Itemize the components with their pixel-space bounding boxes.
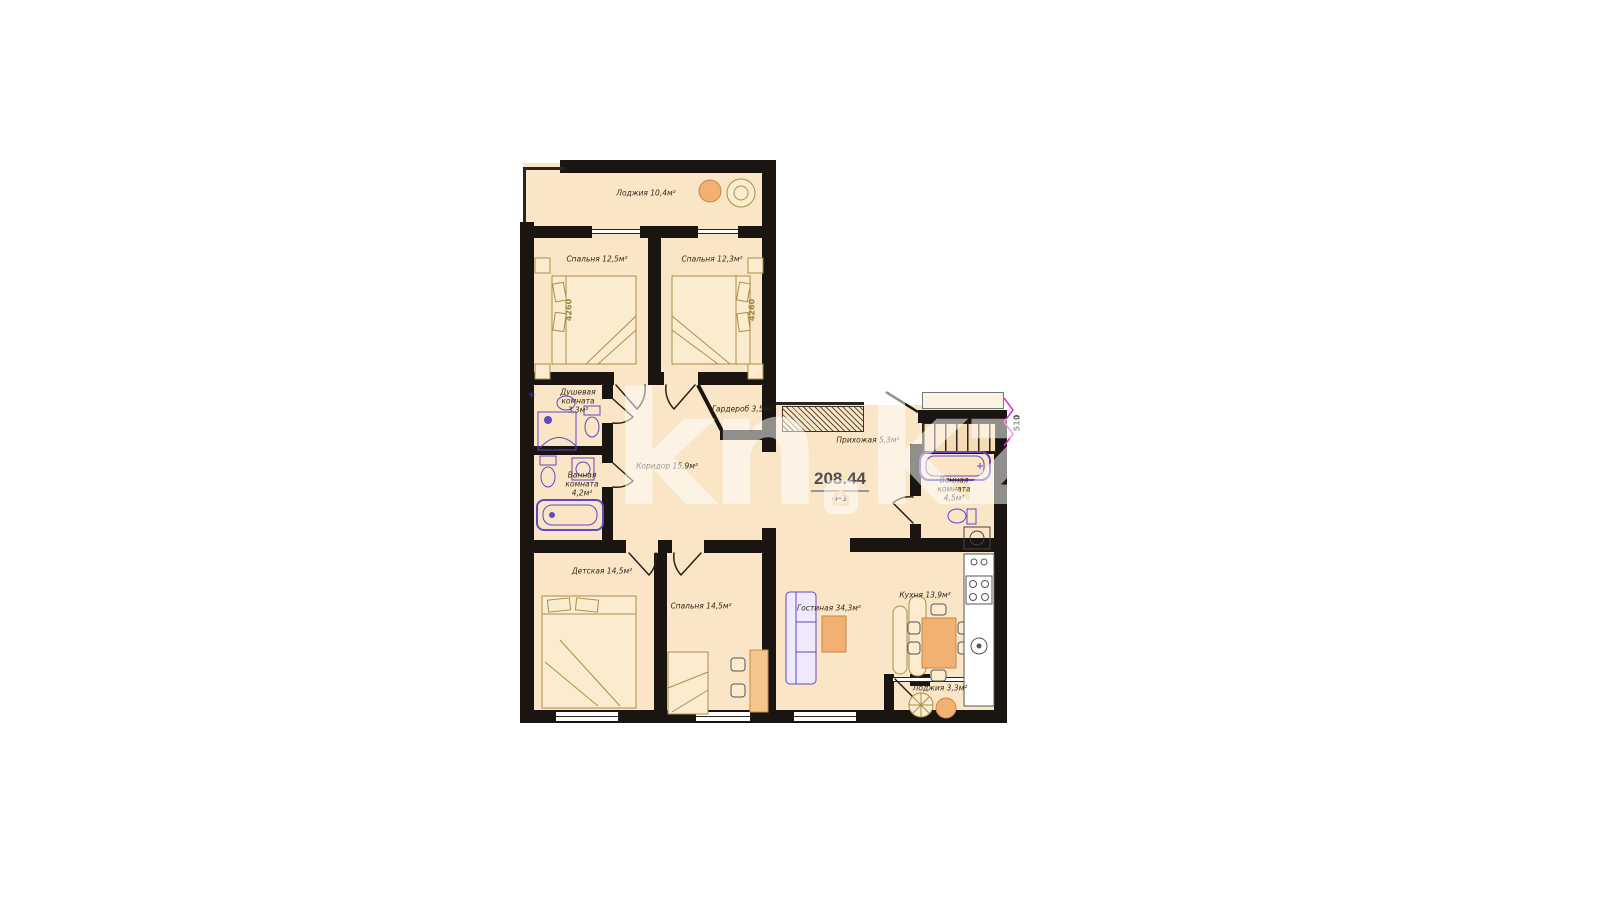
wall-segment	[560, 160, 772, 173]
stair-landing	[922, 392, 1004, 409]
staircase	[922, 423, 996, 452]
wall-segment	[524, 226, 592, 238]
window	[592, 229, 640, 234]
total-area-value: 208.44	[811, 470, 869, 492]
wall-segment	[776, 402, 864, 405]
wall-segment	[910, 444, 921, 496]
area-badge: 208.44 4-1	[798, 470, 882, 505]
wall-segment	[698, 372, 762, 385]
wall-segment	[602, 423, 613, 463]
window	[893, 677, 983, 682]
room-label-loggia-bottom: Лоджия 3,3м²	[913, 684, 968, 693]
dimension-label: 510	[1013, 415, 1022, 432]
wall-segment	[534, 540, 626, 553]
wall-segment	[520, 222, 534, 723]
room-label-shower-room: Душевая комната 3,3м²	[550, 388, 606, 415]
room-label-kids-room: Детская 14,5м²	[572, 567, 632, 576]
room-label-corridor: Коридор 15,9м²	[636, 462, 698, 471]
wall-segment	[523, 167, 526, 225]
room-label-bathroom-left: Ванная комната 4,2м²	[554, 471, 610, 498]
wall-segment	[704, 540, 776, 553]
wall-segment	[648, 372, 664, 385]
window	[696, 711, 750, 722]
room-label-bedroom-top-left: Спальня 12,5м²	[566, 255, 627, 264]
room-label-loggia-top: Лоджия 10,4м²	[616, 189, 675, 198]
plan-code: 4-1	[798, 492, 882, 505]
wall-segment	[720, 430, 762, 440]
room-label-wardrobe: Гардероб 3,5м²	[712, 405, 772, 414]
window	[698, 229, 738, 234]
wall-segment	[523, 167, 565, 170]
dimension-label: 4260	[748, 299, 757, 321]
wall-segment	[654, 553, 667, 710]
wall-segment	[534, 372, 614, 385]
wall-segment	[762, 528, 776, 723]
window	[794, 711, 856, 722]
wall-segment	[918, 410, 1006, 423]
wall-segment	[658, 540, 672, 553]
room-label-bedroom-top-right: Спальня 12,3м²	[681, 255, 742, 264]
dimension-label: 4260	[565, 299, 574, 321]
room-label-kitchen: Кухня 13,9м²	[899, 591, 950, 600]
wall-segment	[982, 674, 996, 686]
floor-plan-page: ✳	[0, 0, 1600, 900]
wall-segment	[850, 538, 996, 552]
room-label-bathroom-right: Ванная комната 4,5м²	[926, 476, 982, 503]
wall-segment	[648, 226, 661, 382]
room-label-bedroom-bottom: Спальня 14,5м²	[670, 602, 731, 611]
room-label-living-room: Гостиная 34,3м²	[797, 604, 861, 613]
window	[556, 711, 618, 722]
room-label-hallway: Прихожая 5,3м²	[836, 436, 899, 445]
wall-segment	[738, 226, 772, 238]
wall-segment	[534, 446, 602, 455]
hallway-wardrobe-hatch	[782, 406, 864, 432]
